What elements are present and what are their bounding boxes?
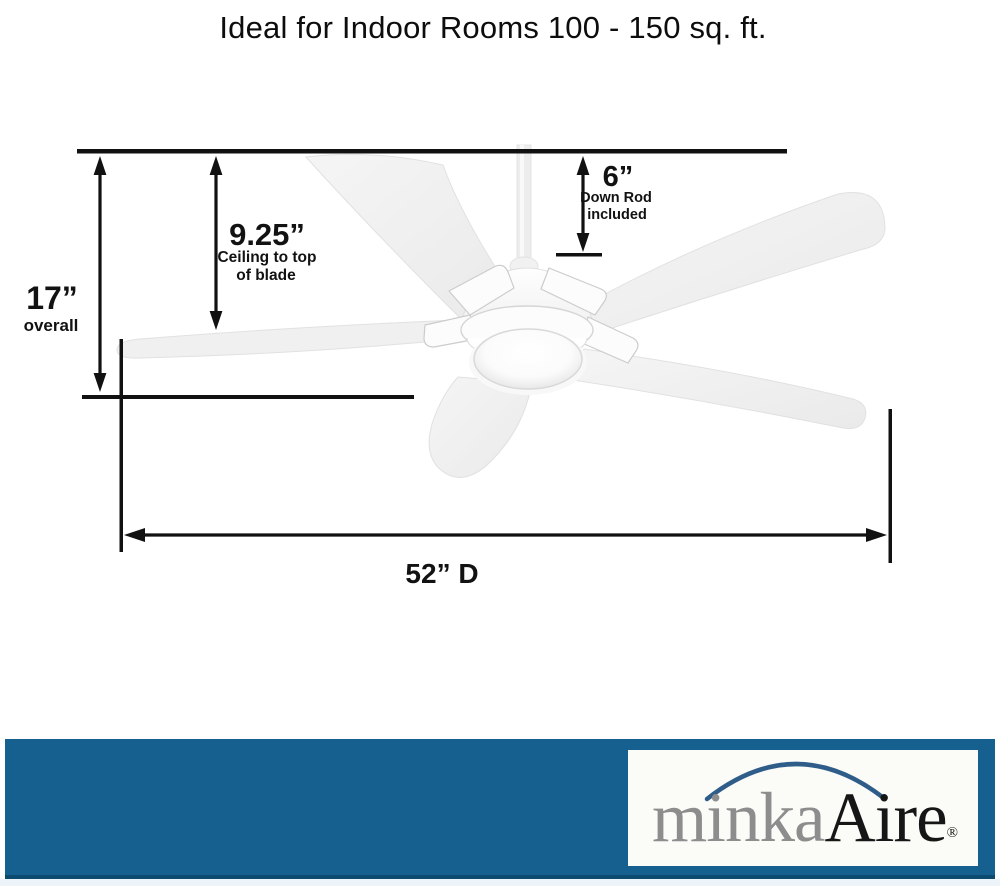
brand-logo-box: minkaAire® — [628, 750, 978, 866]
brand-name-minka: minka — [652, 779, 824, 857]
brand-name-aire: Aire — [824, 779, 946, 857]
fan-blade-left — [117, 320, 458, 358]
fan-dimension-diagram — [0, 0, 1000, 740]
fan-light-kit — [474, 329, 582, 389]
registered-mark: ® — [947, 826, 958, 841]
down-rod-value: 6” — [568, 161, 668, 193]
diameter-extent-line-right — [889, 409, 893, 563]
overall-height-arrow — [94, 156, 107, 392]
overall-height-label: overall — [1, 316, 101, 335]
diameter-extent-line-left — [120, 339, 124, 552]
ceiling-line — [77, 149, 787, 154]
product-dimension-sheet: Ideal for Indoor Rooms 100 - 150 sq. ft. — [0, 0, 1000, 886]
fan-bottom-reference-line — [82, 395, 414, 399]
fan-blade-lower-right — [566, 349, 866, 429]
down-rod-label-line2: included — [547, 207, 687, 223]
ceiling-to-blade-label-line2: of blade — [196, 267, 336, 284]
ceiling-to-blade-value: 9.25” — [217, 218, 317, 253]
fan-downrod-highlight — [520, 145, 524, 263]
overall-height-value: 17” — [2, 281, 102, 317]
down-rod-label-line1: Down Rod — [546, 190, 686, 206]
ceiling-to-blade-label-line1: Ceiling to top — [197, 249, 337, 266]
brand-wordmark: minkaAire® — [652, 783, 958, 854]
ceiling-fan-illustration — [117, 145, 885, 477]
diameter-value: 52” D — [362, 558, 522, 589]
bottom-strip — [0, 879, 1000, 886]
